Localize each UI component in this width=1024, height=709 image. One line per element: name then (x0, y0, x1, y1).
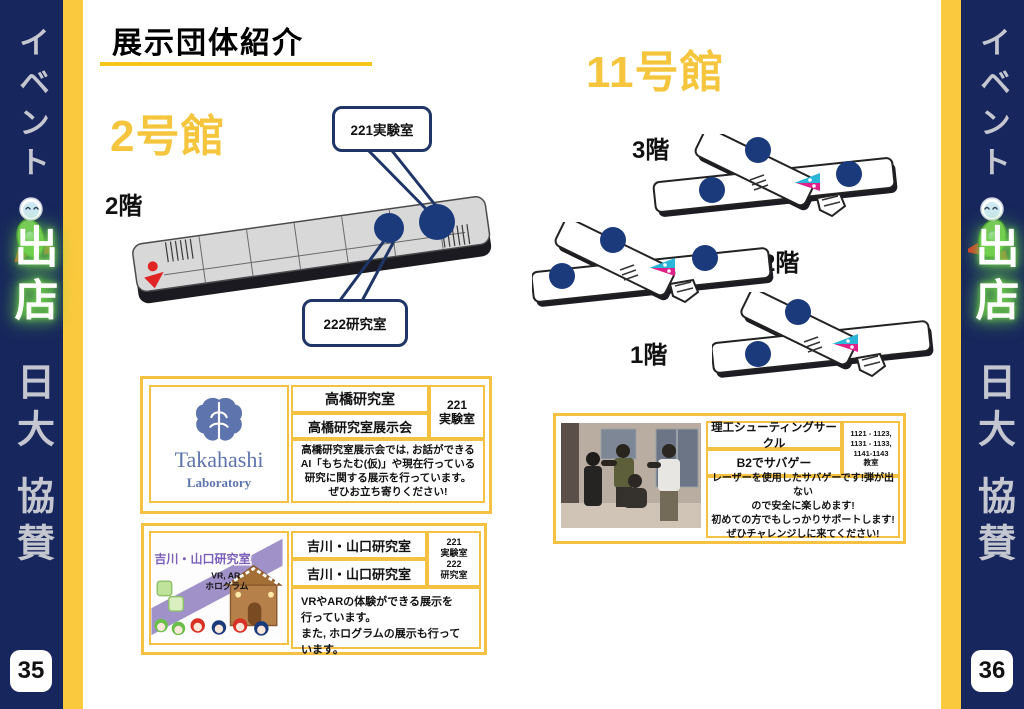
room-marker (692, 245, 718, 271)
room-marker (745, 341, 771, 367)
room-marker (549, 263, 575, 289)
page-title: 展示団体紹介 (112, 18, 304, 62)
yoshikawa-group-name: 吉川・山口研究室 (291, 531, 427, 559)
entrance-icon (817, 194, 845, 216)
banner-nichidai-label: 日大 (974, 362, 1012, 456)
shooting-group-name: 理工シューティングサークル (706, 421, 842, 449)
takahashi-description: 高橋研究室展示会では, お話ができる AI「もちたむ(仮)」や現在行っている 研… (291, 439, 485, 503)
banner-kyosan-label: 協賛 (974, 476, 1012, 570)
shooting-room: 1121 - 1123, 1131 - 1133, 1141-1143 教室 (842, 421, 900, 476)
shooting-photo (561, 423, 701, 528)
room-marker (785, 299, 811, 325)
yoshikawa-image-sub2: ホログラム (205, 580, 248, 591)
takahashi-room: 221 実験室 (429, 385, 485, 439)
building2-name: 2号館 (110, 100, 225, 164)
left-banner: イベント 出店 日大 協賛 35 (0, 0, 63, 709)
page-number-left: 35 (10, 650, 52, 692)
pamphlet-page: イベント 出店 日大 協賛 35 イベント (0, 0, 1024, 709)
shooting-description: レーザーを使用したサバゲーです!弾が出ない ので安全に楽しめます! 初めての方で… (706, 476, 900, 538)
title-underline (100, 62, 372, 66)
yoshikawa-exhibit-name: 吉川・山口研究室 (291, 559, 427, 587)
banner-shop-label: 出店 (971, 224, 1015, 330)
building2-floorplan (122, 190, 502, 310)
takahashi-logo-title: Takahashi (175, 447, 264, 473)
banner-event-label: イベント (16, 26, 47, 186)
yoshikawa-image-title: 吉川・山口研究室 (154, 551, 250, 566)
room-marker (745, 137, 771, 163)
callout-221: 221実験室 (332, 106, 432, 152)
yoshikawa-image-sub1: VR, AR (211, 570, 241, 580)
yoshikawa-image: 吉川・山口研究室 VR, AR ホログラム (149, 531, 289, 645)
right-banner: イベント 出店 日大 協賛 36 (961, 0, 1024, 709)
callout-222: 222研究室 (302, 299, 408, 347)
room-marker (836, 161, 862, 187)
takahashi-group-name: 高橋研究室 (291, 385, 429, 413)
room-marker (699, 177, 725, 203)
entrance-icon (670, 280, 698, 302)
yoshikawa-card: 吉川・山口研究室 VR, AR ホログラム 吉川・山口研究室 吉川・山口研究室 … (141, 523, 487, 655)
building11-floor1-label: 1階 (630, 335, 667, 370)
takahashi-logo-subtitle: Laboratory (187, 475, 251, 491)
left-yellow-stripe (63, 0, 83, 709)
building11-floor1-plan (712, 292, 947, 387)
takahashi-logo: Takahashi Laboratory (149, 385, 289, 503)
banner-shop-label: 出店 (10, 224, 54, 330)
building11-floor3-plan (652, 134, 902, 222)
banner-nichidai-label: 日大 (13, 362, 51, 456)
brain-icon (192, 397, 246, 445)
building11-name: 11号館 (586, 36, 725, 100)
yoshikawa-description: VRやARの体験ができる展示を 行っています。 また, ホログラムの展示も行って… (291, 587, 481, 649)
yoshikawa-room: 221 実験室 222 研究室 (427, 531, 481, 587)
shooting-card: 理工シューティングサークル B2でサバゲー 1121 - 1123, 1131 … (553, 413, 906, 544)
banner-event-label: イベント (977, 26, 1008, 186)
room-marker (600, 227, 626, 253)
page-number-right: 36 (971, 650, 1013, 692)
banner-kyosan-label: 協賛 (13, 476, 51, 570)
takahashi-card: Takahashi Laboratory 高橋研究室 高橋研究室展示会 221 … (140, 376, 492, 514)
takahashi-exhibit-name: 高橋研究室展示会 (291, 413, 429, 439)
entrance-icon (857, 354, 885, 376)
